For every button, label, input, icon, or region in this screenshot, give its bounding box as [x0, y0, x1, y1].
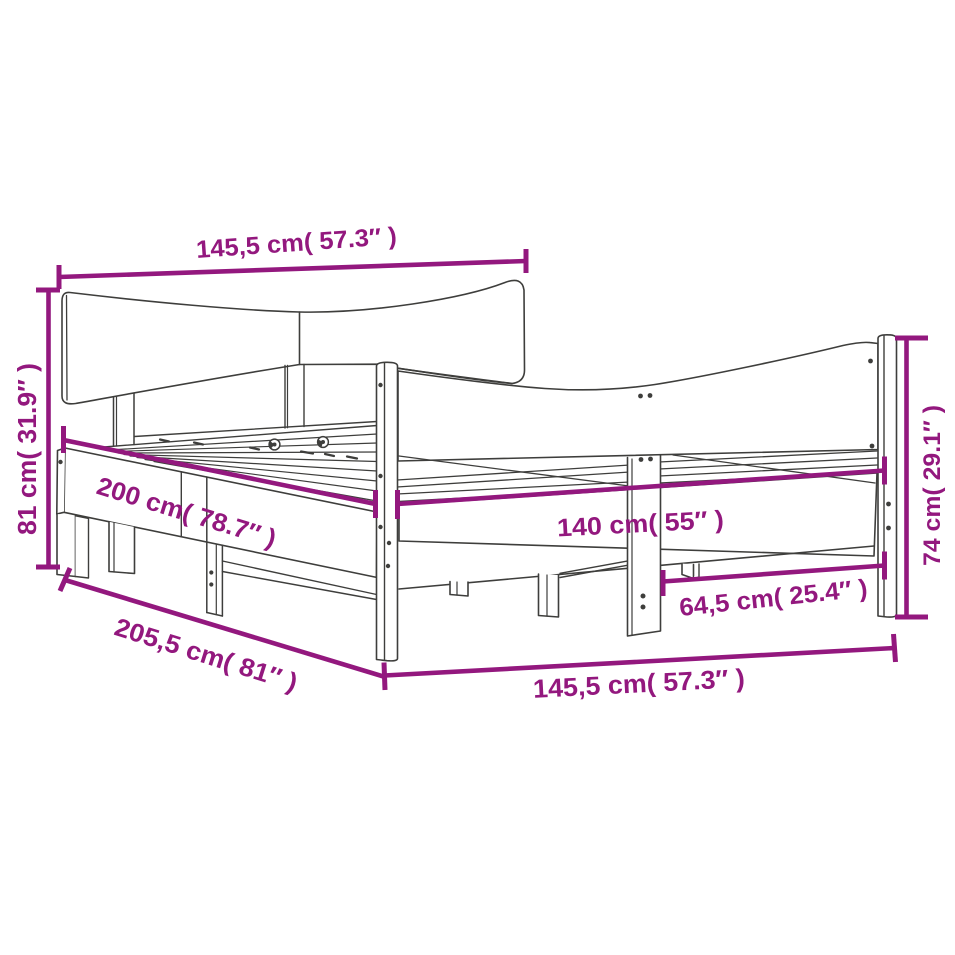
svg-text:74 cm( 29.1″ ): 74 cm( 29.1″ )	[919, 405, 946, 566]
svg-text:81 cm( 31.9″ ): 81 cm( 31.9″ )	[14, 363, 42, 535]
